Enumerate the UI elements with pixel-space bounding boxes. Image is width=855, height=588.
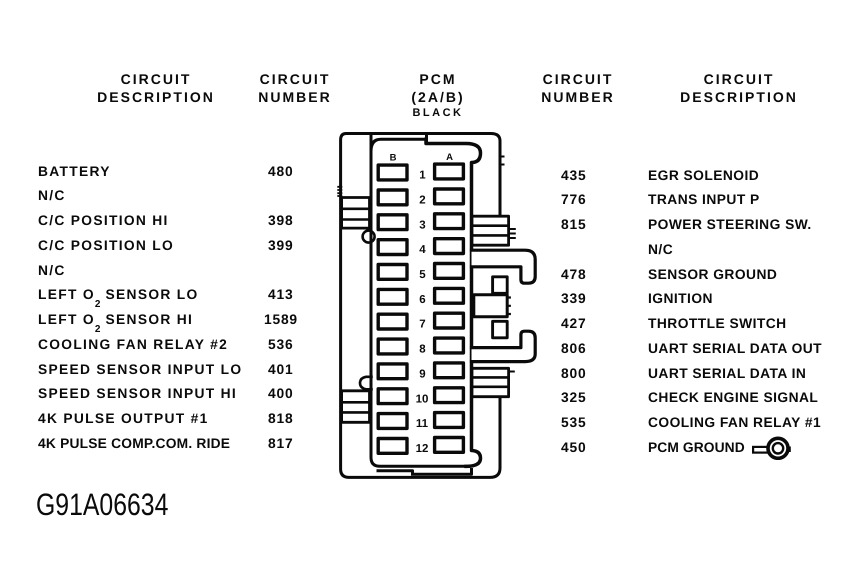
svg-text:6: 6	[419, 294, 425, 306]
svg-text:7: 7	[419, 319, 425, 331]
svg-text:4: 4	[419, 244, 426, 256]
svg-text:12: 12	[416, 443, 429, 455]
svg-text:B: B	[390, 153, 397, 164]
svg-text:3: 3	[419, 219, 425, 231]
svg-text:2: 2	[419, 195, 425, 207]
svg-text:10: 10	[416, 393, 429, 405]
svg-text:9: 9	[419, 368, 425, 380]
svg-text:8: 8	[419, 344, 426, 356]
svg-text:5: 5	[419, 269, 426, 281]
svg-text:11: 11	[416, 418, 429, 430]
svg-text:1: 1	[419, 170, 426, 182]
svg-text:A: A	[446, 152, 453, 163]
